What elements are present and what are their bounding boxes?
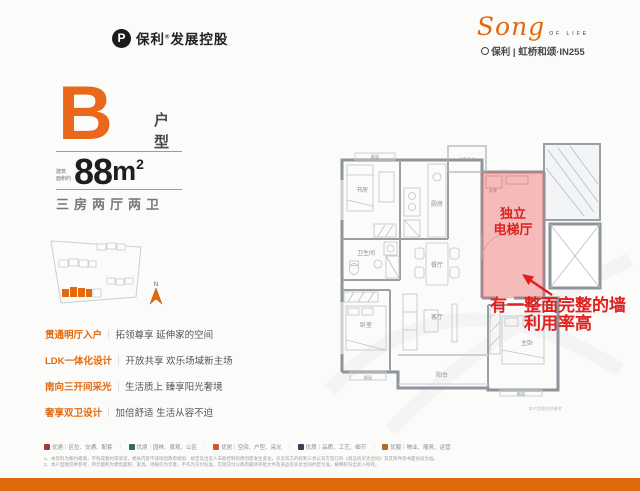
legend-label: 优境｜园林、景观、公区: [137, 443, 198, 451]
legend-label: 优居｜空间、户型、采光: [221, 443, 282, 451]
feature-list: 贯通明厅入户｜拓领尊享 延伸家的空间 LDK一体化设计｜开放共享 欢乐场域新主场…: [45, 331, 255, 435]
legend-item: 优遇｜区位、交通、配套: [44, 443, 113, 451]
feature-item: 南向三开间采光｜生活质上 臻享阳光奢境: [45, 383, 255, 393]
annotation-line1: 有一整面完整的墙: [490, 295, 626, 315]
logo-tagline: OF LIFE: [549, 31, 589, 37]
feature-separator: ｜: [114, 382, 124, 393]
legend-swatch-icon: [382, 444, 388, 450]
label-bay-window-2: 飘窗: [364, 374, 372, 381]
legend-swatch-icon: [298, 444, 304, 450]
legend-label: 优服｜物业、服务、运营: [390, 443, 451, 451]
legend-swatch-icon: [44, 444, 50, 450]
north-arrow-icon: [150, 288, 162, 304]
room-label-master: 主卧: [521, 339, 533, 347]
legend-swatch-icon: [129, 444, 135, 450]
poly-logo-icon: P: [112, 29, 131, 48]
project-name: 保利 | 虹桥和颂·IN255: [491, 44, 584, 58]
area-prefix: 建筑面积约: [56, 169, 71, 182]
area-value: 88: [74, 157, 112, 186]
room-label-study: 书房: [356, 186, 368, 194]
developer-name: 保利®发展控股: [136, 28, 228, 48]
legend-item: 优服｜物业、服务、运营: [382, 443, 451, 451]
plan-caption: 本户型图仅供参考: [528, 405, 562, 412]
feature-item: 奢享双卫设计｜加倍舒适 生活从容不迫: [45, 409, 255, 419]
feature-title: 贯通明厅入户: [45, 330, 102, 341]
disclaimer-line2: 2、本户型图仅供参考，所示面积为建筑面积，家具、绿植仅为示意，不作为交付标准，实…: [44, 462, 596, 468]
feature-title: 奢享双卫设计: [45, 408, 102, 419]
highlight-label-line1: 独立: [500, 206, 526, 221]
legend-item: 优质｜品质、工艺、细节: [298, 443, 367, 451]
room-label-balcony: 阳台: [436, 371, 448, 379]
feature-item: LDK一体化设计｜开放共享 欢乐场域新主场: [45, 357, 255, 367]
developer-logo: P 保利®发展控股: [112, 28, 228, 48]
logo-script-line: SongOF LIFE: [468, 14, 598, 40]
room-label-dining: 餐厅: [431, 261, 443, 269]
feature-separator: ｜: [104, 408, 114, 419]
legend-separator: ｜: [371, 442, 377, 451]
room-label-living: 客厅: [431, 313, 443, 321]
north-label: N: [154, 281, 159, 288]
legend-separator: ｜: [287, 442, 293, 451]
annotation-line2: 利用率高: [524, 313, 592, 333]
site-plan-map: N: [45, 231, 175, 325]
legend-swatch-icon: [213, 444, 219, 450]
feature-separator: ｜: [114, 356, 124, 367]
feature-desc: 生活质上 臻享阳光奢境: [125, 382, 223, 393]
feature-title: 南向三开间采光: [45, 382, 112, 393]
area-unit: m: [112, 157, 136, 186]
feature-desc: 加倍舒适 生活从容不迫: [116, 408, 214, 419]
legend-item: 优居｜空间、户型、采光: [213, 443, 282, 451]
project-mark-icon: [481, 47, 489, 55]
label-bay-window-1: 飘窗: [371, 153, 379, 160]
label-bay-window-3: 飘窗: [517, 391, 525, 398]
feature-title: LDK一体化设计: [45, 356, 112, 367]
label-equipment-platform: 设备平台: [459, 156, 476, 163]
bottom-accent-bar: [0, 478, 640, 491]
unit-letter: B: [58, 82, 113, 147]
highlight-label-line2: 电梯厅: [493, 222, 532, 237]
poster-page: P 保利®发展控股 SongOF LIFE 保利 | 虹桥和颂·IN255 B …: [0, 0, 640, 491]
room-label-bath: 卫生间: [357, 249, 375, 257]
legend-separator: ｜: [202, 442, 208, 451]
project-name-line: 保利 | 虹桥和颂·IN255: [468, 44, 598, 58]
legend-item: 优境｜园林、景观、公区: [129, 443, 198, 451]
room-label-kitchen: 厨房: [431, 200, 443, 208]
legend-label: 优遇｜区位、交通、配套: [52, 443, 113, 451]
area-line: 建筑面积约 88m2: [56, 154, 144, 186]
unit-type-label: 户型: [150, 112, 171, 156]
legend-row: 优遇｜区位、交通、配套 ｜ 优境｜园林、景观、公区 ｜ 优居｜空间、户型、采光 …: [44, 442, 606, 451]
rooms-count-label: 三房两厅两卫: [56, 194, 164, 213]
legend-label: 优质｜品质、工艺、细节: [306, 443, 367, 451]
building-core: [544, 144, 600, 288]
project-logo: SongOF LIFE 保利 | 虹桥和颂·IN255: [468, 14, 598, 58]
feature-separator: ｜: [104, 330, 114, 341]
area-superscript: 2: [136, 142, 144, 186]
feature-desc: 拓领尊享 延伸家的空间: [116, 330, 214, 341]
room-label-bedroom: 卧室: [360, 321, 372, 329]
divider-bottom: [56, 189, 182, 190]
logo-script-text: Song: [477, 12, 545, 41]
disclaimer-text: 1、本资料为要约邀请，不构成要约或承诺，相关内容不排除因政府规划、规定及出卖人未…: [44, 456, 596, 468]
highlighted-building: [62, 287, 92, 297]
legend-separator: ｜: [118, 442, 124, 451]
feature-item: 贯通明厅入户｜拓领尊享 延伸家的空间: [45, 331, 255, 341]
feature-desc: 开放共享 欢乐场域新主场: [126, 356, 233, 367]
floor-plan: 书房 厨房 卫生间 餐厅 客厅 阳台 卧室 主卧 设备平台 飘窗 飘窗 飘窗 玄…: [300, 140, 640, 440]
highlight-region: 独立 电梯厅: [482, 172, 544, 298]
